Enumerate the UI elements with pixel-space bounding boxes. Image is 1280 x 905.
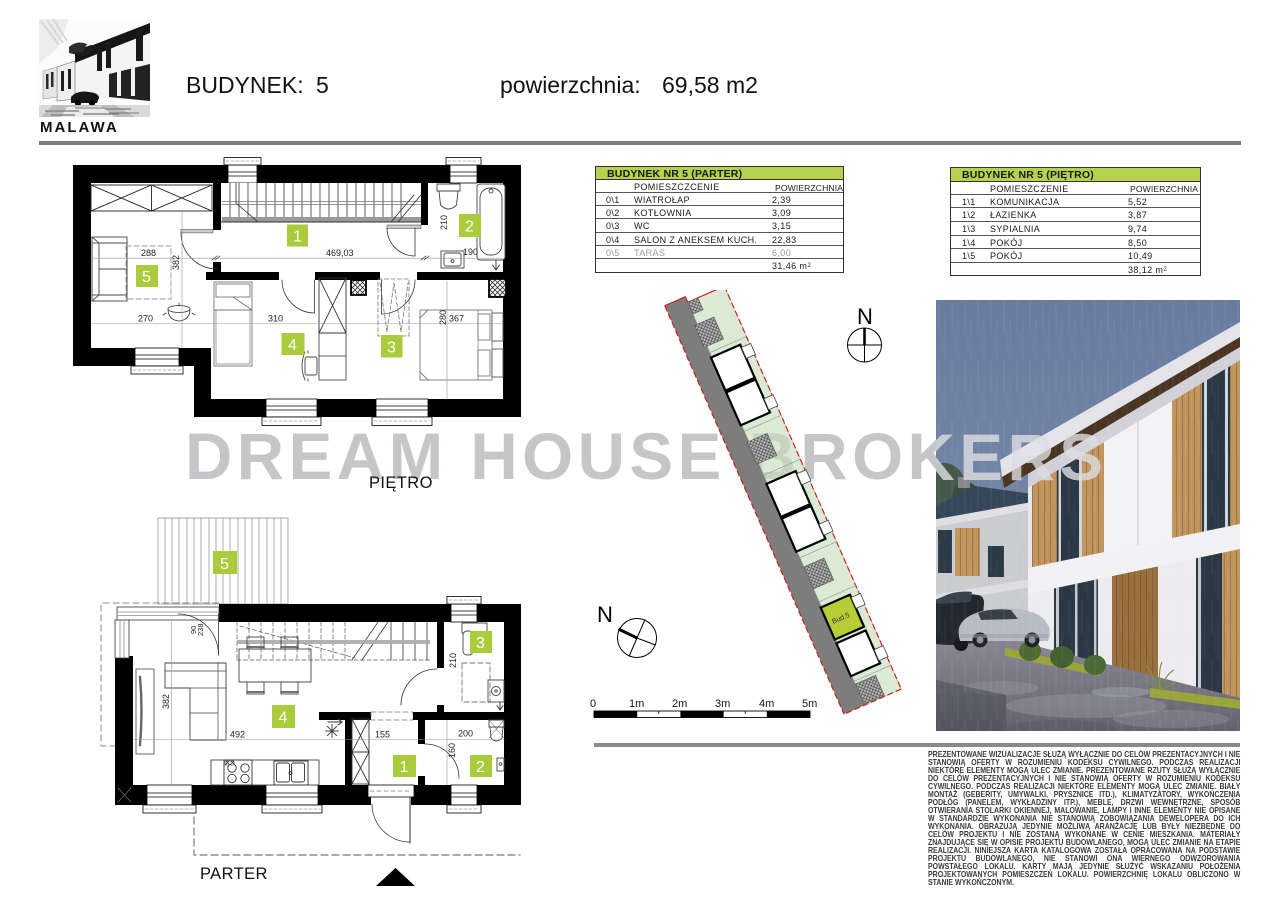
svg-text:288: 288 (141, 248, 156, 258)
svg-text:155: 155 (375, 730, 390, 740)
svg-text:3: 3 (387, 340, 396, 357)
svg-text:N: N (597, 602, 613, 627)
svg-text:4m: 4m (759, 698, 774, 710)
svg-text:382: 382 (161, 694, 171, 709)
svg-text:4: 4 (288, 337, 297, 354)
svg-text:280: 280 (438, 310, 448, 325)
svg-text:1: 1 (293, 229, 302, 246)
svg-text:469,03: 469,03 (326, 248, 354, 258)
svg-text:1: 1 (400, 759, 409, 776)
svg-text:367: 367 (449, 314, 464, 324)
svg-text:0: 0 (590, 698, 596, 710)
svg-text:310: 310 (268, 314, 283, 324)
svg-text:238: 238 (196, 623, 205, 636)
svg-text:270: 270 (138, 314, 153, 324)
svg-text:2: 2 (476, 759, 485, 776)
svg-text:2: 2 (465, 219, 474, 236)
svg-text:PIĘTRO: PIĘTRO (369, 474, 433, 492)
svg-text:PARTER: PARTER (200, 865, 268, 883)
svg-text:382: 382 (171, 255, 181, 270)
svg-text:492: 492 (230, 730, 245, 740)
svg-text:3m: 3m (715, 698, 730, 710)
svg-text:3: 3 (476, 635, 485, 652)
svg-text:N: N (857, 304, 873, 329)
svg-text:200: 200 (458, 729, 473, 739)
svg-text:210: 210 (448, 653, 458, 668)
svg-text:190: 190 (463, 247, 478, 257)
svg-text:5m: 5m (802, 698, 817, 710)
svg-text:2m: 2m (672, 698, 687, 710)
svg-text:5: 5 (220, 556, 229, 573)
svg-text:4: 4 (279, 710, 288, 727)
svg-text:160: 160 (447, 743, 457, 758)
svg-text:1m: 1m (629, 698, 644, 710)
svg-text:5: 5 (142, 269, 151, 286)
svg-text:210: 210 (439, 215, 449, 230)
